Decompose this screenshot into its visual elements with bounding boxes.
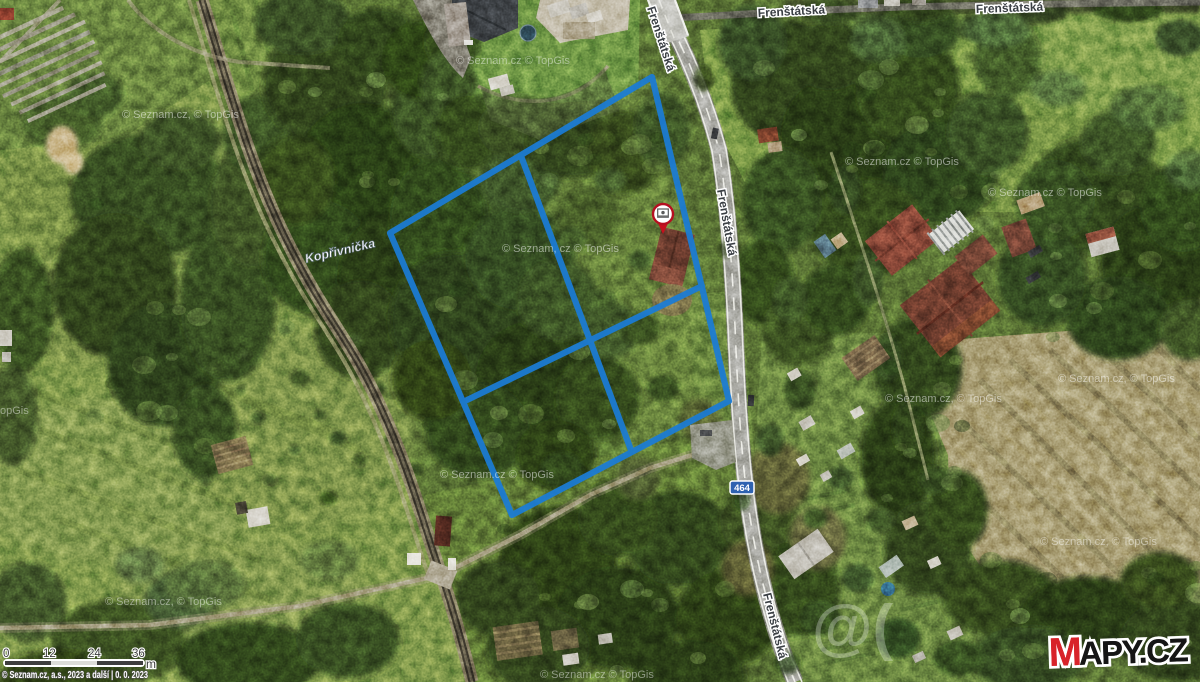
svg-text:12: 12 — [43, 648, 56, 660]
svg-text:@(: @( — [812, 593, 893, 662]
svg-text:© Seznam.cz © TopGis: © Seznam.cz © TopGis — [540, 669, 654, 681]
svg-text:© Seznam.cz, © TopGis: © Seznam.cz, © TopGis — [885, 393, 1002, 405]
svg-text:opGis: opGis — [0, 405, 29, 417]
svg-text:© Seznam.cz, © TopGis: © Seznam.cz, © TopGis — [122, 109, 239, 121]
svg-text:© Seznam.cz, a.s., 2023 a dalš: © Seznam.cz, a.s., 2023 a další | 0. 0. … — [2, 670, 148, 681]
svg-text:© Seznam.cz © TopGis: © Seznam.cz © TopGis — [456, 55, 570, 67]
svg-text:24: 24 — [88, 648, 101, 660]
svg-text:m: m — [146, 657, 156, 671]
svg-text:APY.CZ: APY.CZ — [1078, 631, 1189, 672]
svg-text:© Seznam.cz © TopGis: © Seznam.cz © TopGis — [845, 156, 959, 168]
svg-text:© Seznam.cz, © TopGis: © Seznam.cz, © TopGis — [1040, 536, 1157, 548]
svg-text:M: M — [1048, 630, 1081, 675]
svg-text:© Seznam.cz, © TopGis: © Seznam.cz, © TopGis — [105, 596, 222, 608]
svg-text:Frenštátská: Frenštátská — [976, 0, 1044, 16]
svg-text:© Seznam, cz © TopGis: © Seznam, cz © TopGis — [502, 243, 619, 255]
svg-text:© Seznam.cz © TopGis: © Seznam.cz © TopGis — [440, 469, 554, 481]
svg-text:© Seznam.cz, © TopGis: © Seznam.cz, © TopGis — [1058, 373, 1175, 385]
svg-text:© Seznam.cz © TopGis: © Seznam.cz © TopGis — [988, 187, 1102, 199]
svg-text:0: 0 — [3, 648, 9, 660]
svg-text:464: 464 — [734, 483, 751, 494]
svg-text:36: 36 — [132, 648, 145, 660]
